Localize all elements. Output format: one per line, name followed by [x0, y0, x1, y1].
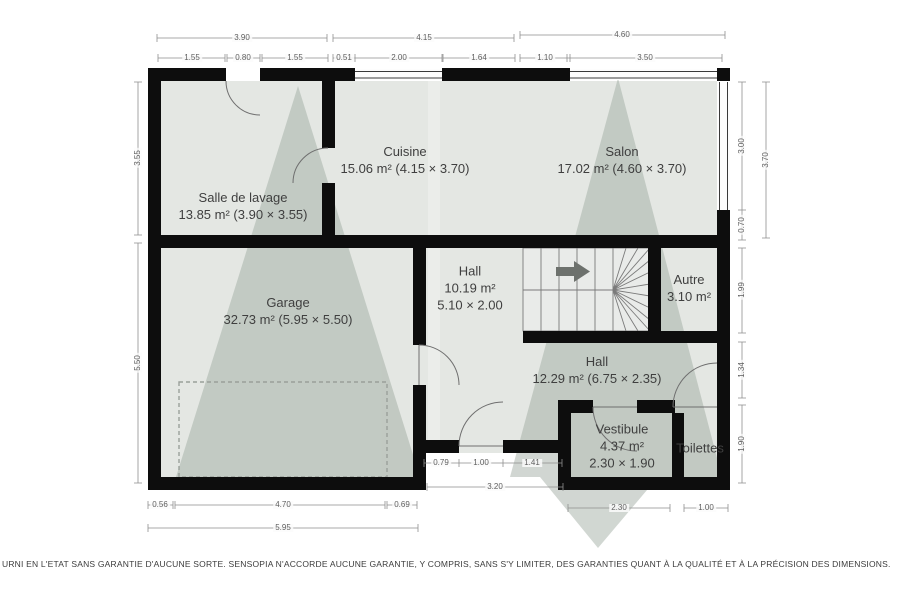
- dimension-label: 3.20: [485, 483, 505, 491]
- room-label-line: Toilettes: [676, 439, 724, 456]
- dimension-label: 1.10: [535, 54, 555, 62]
- room-label-line: Vestibule: [589, 420, 654, 437]
- window-top-salon: [570, 69, 717, 80]
- room-label-line: 17.02 m² (4.60 × 3.70): [558, 160, 687, 177]
- dimension-label: 2.00: [389, 54, 409, 62]
- dimension-label: 4.70: [273, 501, 293, 509]
- dimension-label: 1.99: [738, 280, 746, 300]
- room-label-hall-2: Hall12.29 m² (6.75 × 2.35): [533, 353, 662, 387]
- room-label-line: Cuisine: [341, 143, 470, 160]
- window-right-salon: [717, 82, 730, 210]
- dimension-label: 0.79: [431, 459, 451, 467]
- room-label-toilettes: Toilettes: [676, 439, 724, 456]
- room-label-line: Hall: [533, 353, 662, 370]
- room-label-line: 2.30 × 1.90: [589, 455, 654, 472]
- dimension-label: 1.41: [522, 459, 542, 467]
- dimension-label: 1.90: [738, 434, 746, 454]
- dimension-label: 1.34: [738, 360, 746, 380]
- dimension-label: 5.50: [134, 353, 142, 373]
- room-label-line: 13.85 m² (3.90 × 3.55): [179, 206, 308, 223]
- room-label-line: Salon: [558, 143, 687, 160]
- room-label-line: 4.37 m²: [589, 437, 654, 454]
- staircase: [523, 248, 650, 331]
- room-label-garage: Garage32.73 m² (5.95 × 5.50): [224, 294, 353, 328]
- room-label-hall: Hall10.19 m²5.10 × 2.00: [437, 262, 502, 313]
- room-label-vestibule: Vestibule4.37 m²2.30 × 1.90: [589, 420, 654, 471]
- room-label-line: 3.10 m²: [667, 288, 711, 305]
- room-label-salle-de-lavage: Salle de lavage13.85 m² (3.90 × 3.55): [179, 189, 308, 223]
- dimension-label: 3.50: [635, 54, 655, 62]
- room-label-line: 10.19 m²: [437, 279, 502, 296]
- dimension-label: 0.80: [233, 54, 253, 62]
- room-label-line: 5.10 × 2.00: [437, 297, 502, 314]
- dimension-label: 1.55: [285, 54, 305, 62]
- room-label-line: Autre: [667, 271, 711, 288]
- disclaimer-text: URNI EN L'ETAT SANS GARANTIE D'AUCUNE SO…: [2, 559, 900, 569]
- dimension-label: 0.70: [738, 215, 746, 235]
- room-label-line: 12.29 m² (6.75 × 2.35): [533, 370, 662, 387]
- window-top-kitchen: [355, 69, 442, 80]
- dimension-label: 3.70: [762, 150, 770, 170]
- floor-plan-page: Salle de lavage13.85 m² (3.90 × 3.55)Cui…: [0, 0, 900, 600]
- dimension-label: 2.30: [609, 504, 629, 512]
- dimension-label: 5.95: [273, 524, 293, 532]
- room-label-autre: Autre3.10 m²: [667, 271, 711, 305]
- room-label-line: 15.06 m² (4.15 × 3.70): [341, 160, 470, 177]
- dimension-label: 0.56: [150, 501, 170, 509]
- dimension-label: 0.69: [392, 501, 412, 509]
- room-label-line: Salle de lavage: [179, 189, 308, 206]
- room-label-line: Hall: [437, 262, 502, 279]
- dimension-label: 4.15: [414, 34, 434, 42]
- dimension-label: 1.64: [469, 54, 489, 62]
- dimension-label: 4.60: [612, 31, 632, 39]
- room-label-line: 32.73 m² (5.95 × 5.50): [224, 311, 353, 328]
- dimension-label: 1.00: [696, 504, 716, 512]
- room-label-cuisine: Cuisine15.06 m² (4.15 × 3.70): [341, 143, 470, 177]
- room-label-salon: Salon17.02 m² (4.60 × 3.70): [558, 143, 687, 177]
- dimension-label: 0.51: [334, 54, 354, 62]
- dimension-label: 1.00: [471, 459, 491, 467]
- dimension-label: 3.90: [232, 34, 252, 42]
- dimension-label: 3.00: [738, 136, 746, 156]
- dimension-label: 1.55: [182, 54, 202, 62]
- room-label-line: Garage: [224, 294, 353, 311]
- dimension-label: 3.55: [134, 148, 142, 168]
